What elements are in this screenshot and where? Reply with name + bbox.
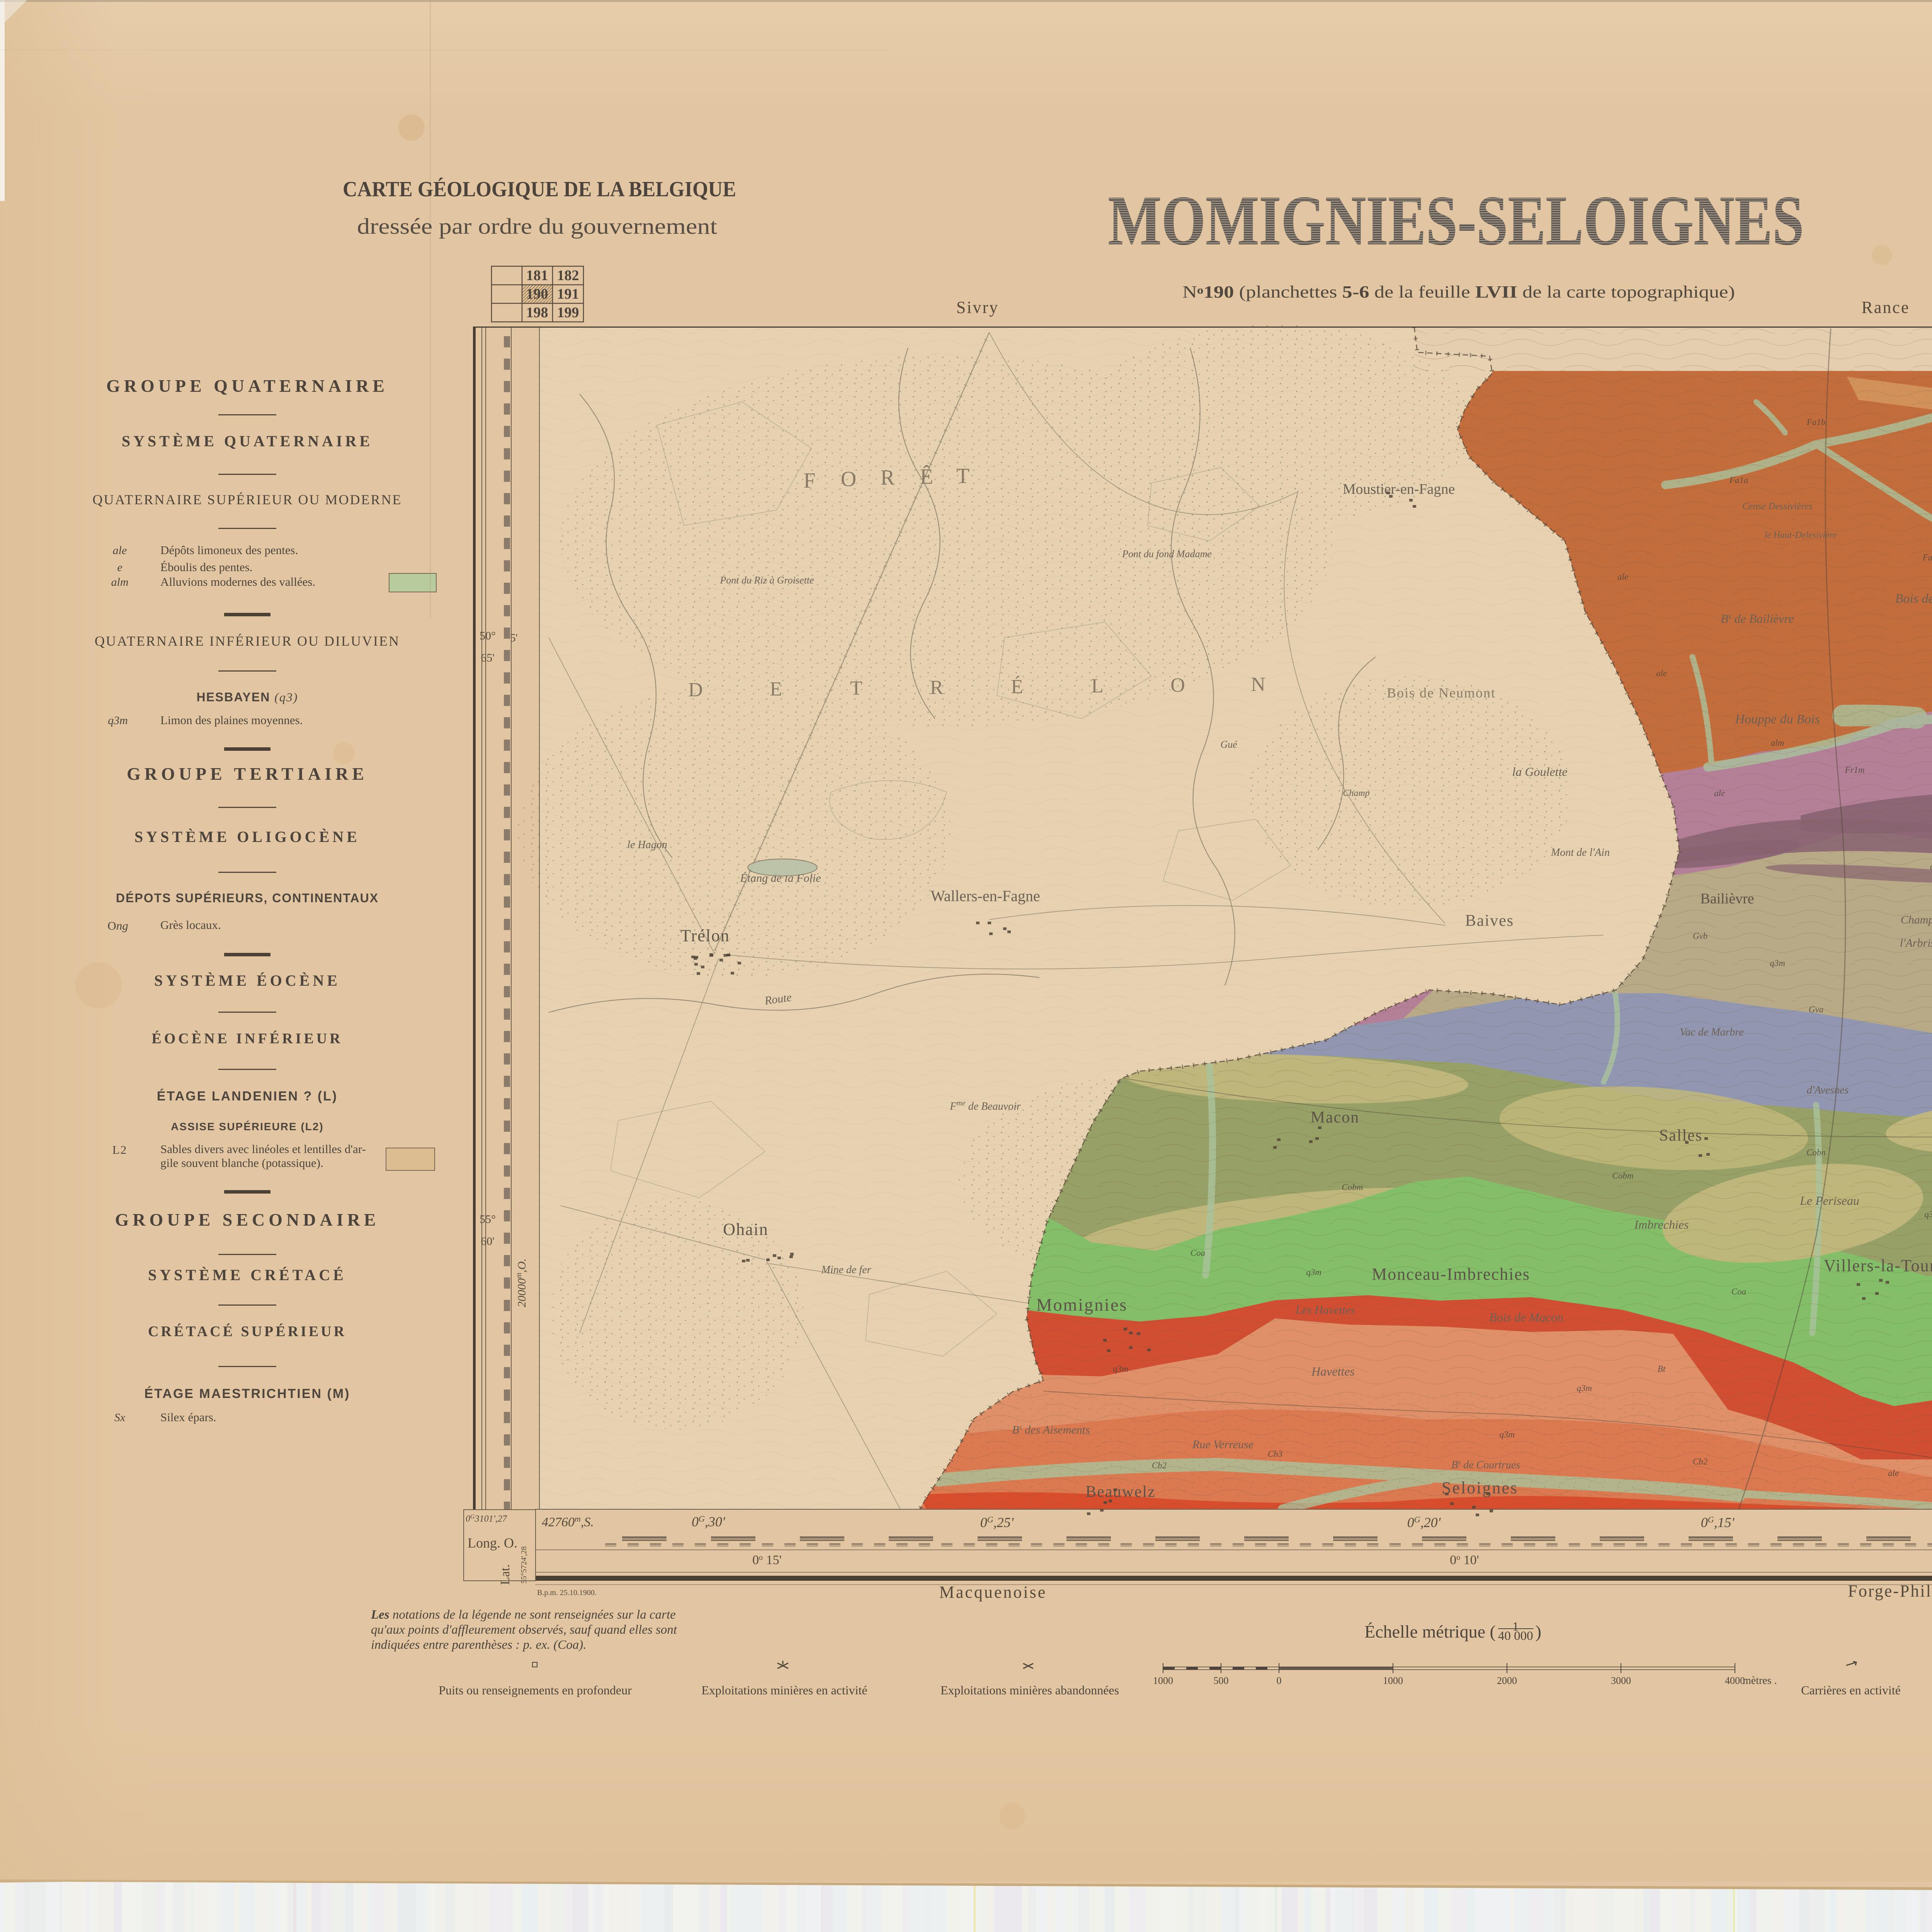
svg-text:E: E [770,678,782,700]
svg-text:ale: ale [1656,668,1667,678]
svg-text:Cobm: Cobm [1612,1171,1634,1180]
svg-text:Coa: Coa [1731,1287,1746,1296]
svg-text:T: T [850,677,862,699]
svg-text:e: e [1930,862,1932,871]
svg-text:Cb3: Cb3 [1268,1449,1282,1459]
svg-text:ale: ale [1888,1468,1899,1478]
svg-text:No190 (planchettes 5-6 de la f: No190 (planchettes 5-6 de la feuille LVI… [1182,282,1735,301]
svg-text:q3m: q3m [1499,1430,1515,1439]
svg-text:la Goulette: la Goulette [1512,765,1567,779]
svg-text:0G,15': 0G,15' [1701,1515,1735,1531]
svg-text:0G,30': 0G,30' [692,1514,726,1530]
svg-text:Bs de Courtrues: Bs de Courtrues [1451,1458,1520,1471]
svg-text:Fr1m: Fr1m [1844,765,1864,775]
svg-text:198: 198 [526,304,548,321]
svg-text:65': 65' [481,651,494,664]
svg-text:Villers-la-Tour: Villers-la-Tour [1824,1256,1932,1275]
svg-text:42760m,S.: 42760m,S. [542,1514,594,1530]
svg-text:Pont du Riz à Groisette: Pont du Riz à Groisette [719,575,814,586]
svg-text:Fa1b: Fa1b [1806,417,1826,427]
svg-text:q3m: q3m [1306,1267,1321,1277]
svg-text:Momignies: Momignies [1036,1295,1128,1315]
svg-text:Lat.: Lat. [498,1564,512,1585]
svg-text:q3m: q3m [1924,1209,1932,1219]
svg-text:Exploitations minières abandon: Exploitations minières abandonnées [940,1683,1119,1697]
svg-text:Cb2: Cb2 [1693,1457,1708,1466]
svg-text:Long. O.: Long. O. [468,1535,517,1551]
svg-text:Gué: Gué [1220,739,1238,750]
svg-text:Wallers-en-Fagne: Wallers-en-Fagne [930,887,1040,905]
svg-text:T: T [956,464,969,488]
svg-text:Forge-Philippe: Forge-Philippe [1848,1582,1932,1600]
svg-text:Ohain: Ohain [723,1220,769,1239]
svg-text:q3m: q3m [1113,1364,1128,1374]
svg-text:le Hagon: le Hagon [627,839,667,851]
svg-text:q3m: q3m [1577,1383,1592,1393]
svg-text:Houppe du Bois: Houppe du Bois [1735,712,1820,726]
svg-text:Cobm: Cobm [1342,1182,1363,1192]
svg-text:Macquenoise: Macquenoise [939,1583,1047,1602]
svg-text:20000m,O.: 20000m,O. [515,1259,528,1307]
svg-text:199: 199 [557,304,579,321]
svg-text:N: N [1251,673,1265,696]
svg-text:Sivry: Sivry [956,298,999,317]
svg-text:0o 10': 0o 10' [1450,1553,1479,1567]
svg-text:55°5724',28: 55°5724',28 [520,1546,528,1584]
svg-text:Moustier-en-Fagne: Moustier-en-Fagne [1343,481,1455,497]
svg-text:Champ: Champ [1343,788,1369,798]
svg-text:O: O [1170,674,1185,696]
svg-text:Bs des Aisements: Bs des Aisements [1012,1423,1090,1436]
svg-text:Trélon: Trélon [680,926,730,945]
svg-text:Seloignes: Seloignes [1442,1478,1518,1497]
svg-text:Champ de: Champ de [1901,913,1932,926]
svg-text:60': 60' [481,1235,494,1248]
svg-text:190: 190 [526,286,548,302]
svg-text:alm: alm [1771,738,1784,748]
svg-text:ale: ale [1714,788,1725,798]
svg-text:Mont de l'Ain: Mont de l'Ain [1551,847,1610,859]
svg-text:Puits ou renseignements en pro: Puits ou renseignements en profondeur [439,1683,632,1697]
svg-text:CARTE GÉOLOGIQUE DE LA BELGIQU: CARTE GÉOLOGIQUE DE LA BELGIQUE [343,177,736,201]
svg-text:0G,20': 0G,20' [1407,1515,1441,1531]
svg-text:Pont du fond Madame: Pont du fond Madame [1122,548,1212,560]
svg-text:l'Arbrisseau: l'Arbrisseau [1900,937,1932,949]
svg-text:Cobn: Cobn [1806,1148,1826,1157]
svg-text:Carrières en activité: Carrières en activité [1801,1683,1901,1697]
svg-text:ale: ale [1617,572,1628,582]
svg-text:Salles: Salles [1659,1127,1702,1145]
svg-text:Bois de Neumont: Bois de Neumont [1387,685,1496,701]
svg-text:É: É [1011,675,1023,698]
svg-text:Monceau-Imbrechies: Monceau-Imbrechies [1372,1265,1530,1284]
svg-text:Gva: Gva [1809,1005,1823,1014]
svg-text:Exploitations minières en acti: Exploitations minières en activité [701,1683,867,1697]
svg-text:Bt: Bt [1658,1364,1666,1374]
svg-text:Bailièvre: Bailièvre [1700,891,1754,907]
svg-text:Cense Dessivières: Cense Dessivières [1742,501,1813,512]
svg-text:le Haut-Delesivière: le Haut-Delesivière [1764,530,1837,540]
svg-text:Macon: Macon [1311,1109,1360,1126]
svg-text:Fa1a: Fa1a [1922,553,1932,562]
svg-text:Beauwelz: Beauwelz [1085,1483,1156,1501]
svg-text:Cb2: Cb2 [1152,1461,1167,1470]
svg-text:Rue Verreuse: Rue Verreuse [1192,1438,1253,1451]
svg-text:50°: 50° [480,629,496,642]
svg-text:d'Avesnes: d'Avesnes [1807,1084,1849,1096]
svg-text:L: L [1091,675,1104,697]
svg-text:55°: 55° [480,1213,496,1226]
svg-text:Bois de Macon: Bois de Macon [1489,1310,1563,1324]
svg-text:5': 5' [510,632,517,644]
svg-text:MOMIGNIES-SELOIGNES: MOMIGNIES-SELOIGNES [1108,181,1804,260]
svg-text:D: D [688,679,703,701]
svg-text:Havettes: Havettes [1311,1364,1355,1378]
svg-text:181: 181 [526,267,548,284]
svg-text:dressée par ordre du gouvernem: dressée par ordre du gouvernement [357,214,717,239]
svg-text:Mine de fer: Mine de fer [821,1264,871,1276]
svg-text:Vac de Marbre: Vac de Marbre [1680,1026,1743,1038]
svg-text:0o 15': 0o 15' [752,1553,782,1567]
svg-text:Le Periseau: Le Periseau [1799,1194,1859,1207]
svg-text:q3m: q3m [1770,958,1785,968]
svg-text:Ê: Ê [920,465,933,489]
svg-text:Imbrechies: Imbrechies [1634,1218,1689,1231]
svg-text:Baives: Baives [1465,912,1514,930]
svg-text:R: R [930,677,944,699]
svg-text:Bs de Bailièvre: Bs de Bailièvre [1721,612,1794,626]
svg-text:191: 191 [557,286,579,302]
svg-text:Les Havettes: Les Havettes [1295,1304,1355,1316]
svg-text:Bois de Salles: Bois de Salles [1895,592,1932,606]
svg-text:Gvb: Gvb [1693,931,1708,941]
svg-text:Coa: Coa [1190,1248,1205,1258]
svg-text:Fa1a: Fa1a [1729,475,1748,485]
svg-text:B.p.m. 25.10.1900.: B.p.m. 25.10.1900. [537,1588,597,1597]
svg-text:0G,25': 0G,25' [980,1515,1014,1531]
svg-text:182: 182 [557,267,579,284]
